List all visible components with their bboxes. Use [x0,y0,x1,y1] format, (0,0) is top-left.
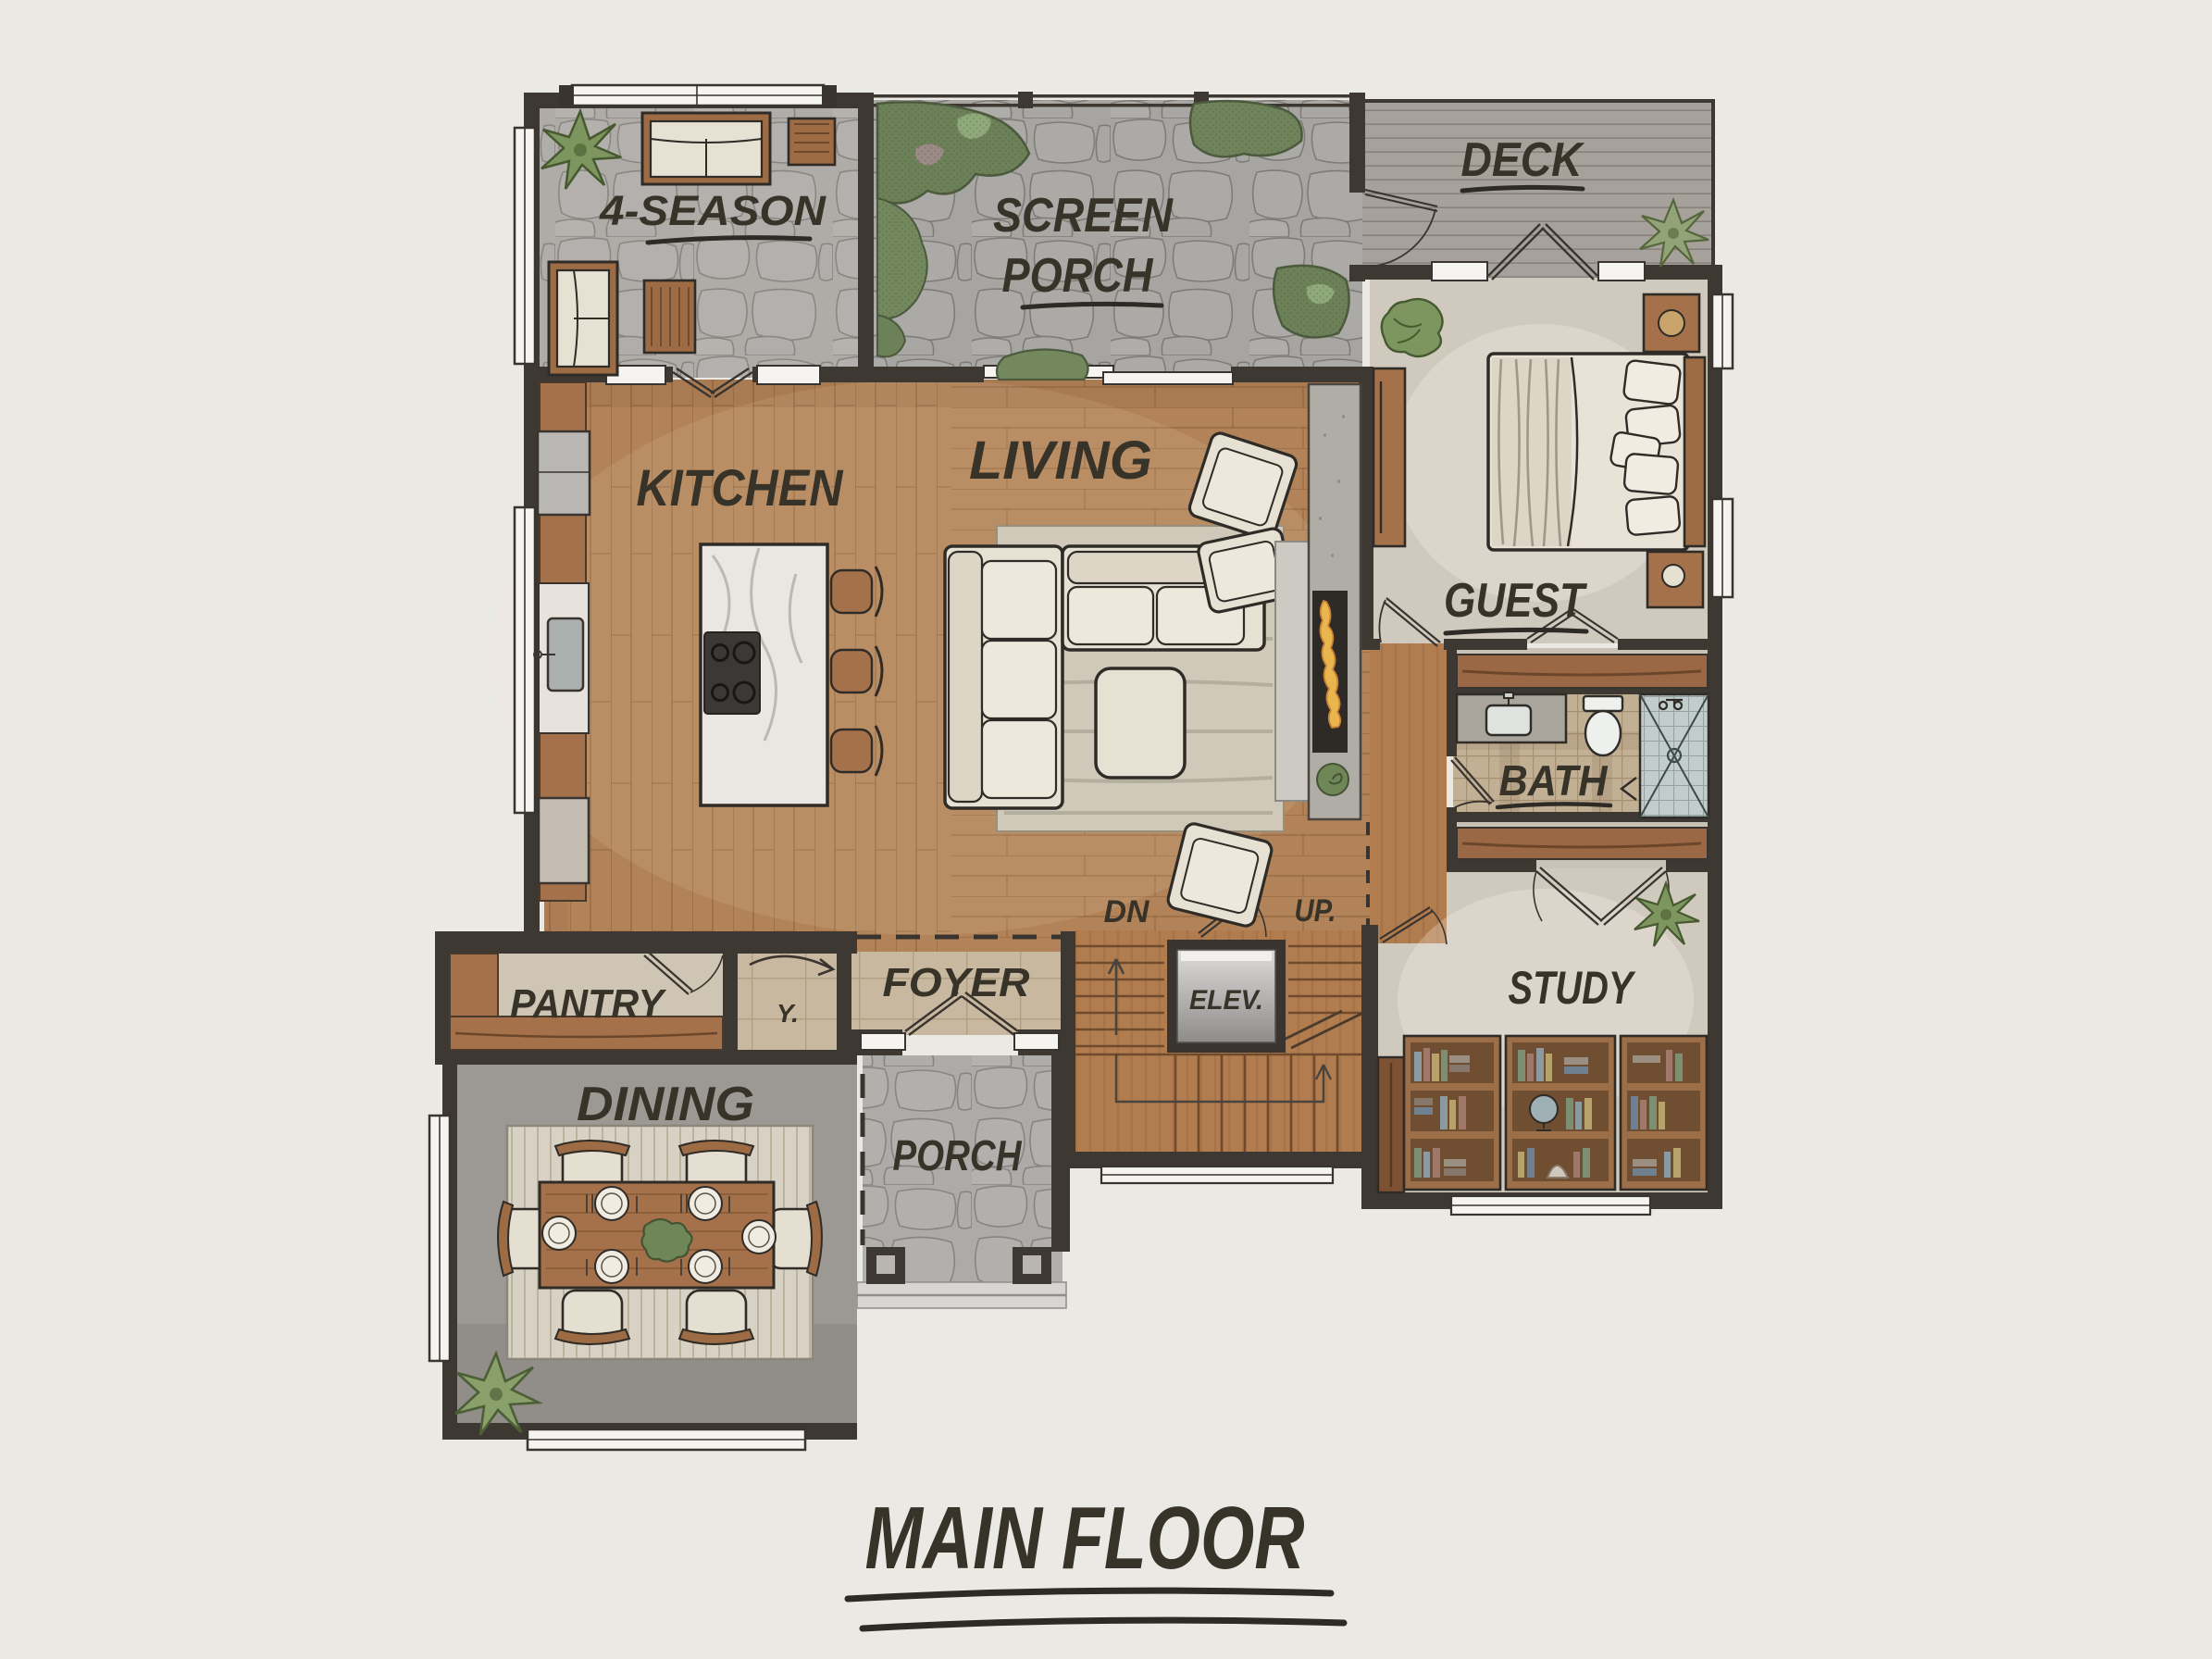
svg-text:STUDY: STUDY [1509,962,1637,1014]
svg-text:UP.: UP. [1295,893,1336,929]
svg-text:FOYER: FOYER [883,960,1030,1005]
svg-text:DINING: DINING [577,1078,754,1131]
svg-text:KITCHEN: KITCHEN [637,458,844,517]
svg-text:PORCH: PORCH [893,1131,1023,1179]
svg-text:PANTRY: PANTRY [510,981,666,1027]
svg-text:SCREEN: SCREEN [993,189,1174,243]
svg-text:BATH: BATH [1499,756,1609,805]
svg-text:DECK: DECK [1461,133,1585,187]
svg-text:MAIN FLOOR: MAIN FLOOR [865,1489,1305,1588]
svg-text:PORCH: PORCH [1002,249,1154,303]
svg-text:Y.: Y. [777,999,799,1028]
svg-text:GUEST: GUEST [1444,574,1588,628]
svg-text:4-SEASON: 4-SEASON [599,187,827,234]
svg-text:ELEV.: ELEV. [1189,985,1263,1016]
svg-text:LIVING: LIVING [969,430,1152,491]
svg-text:DN: DN [1104,894,1150,929]
